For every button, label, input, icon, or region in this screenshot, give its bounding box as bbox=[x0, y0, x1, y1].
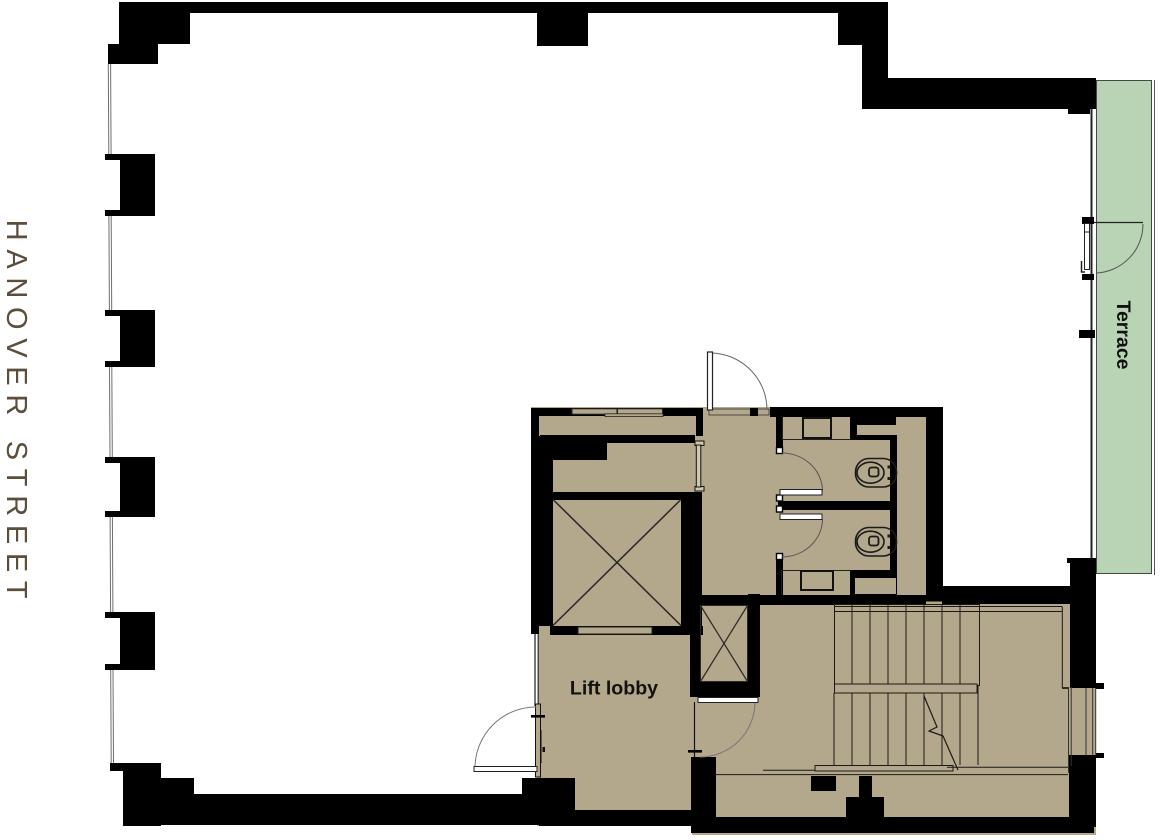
svg-text:HANOVER STREET: HANOVER STREET bbox=[0, 220, 32, 608]
svg-text:Terrace: Terrace bbox=[1112, 300, 1134, 369]
svg-text:Lift lobby: Lift lobby bbox=[570, 677, 658, 699]
